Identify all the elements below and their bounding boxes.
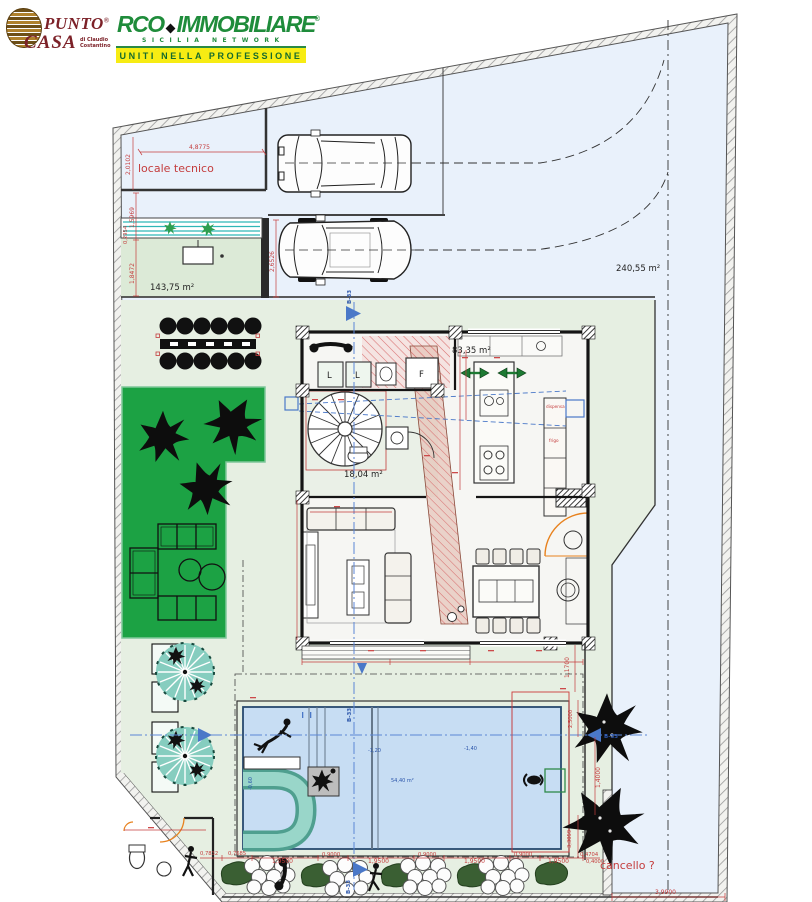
mirror (311, 130, 320, 136)
dim-label: 0,4000 (586, 859, 604, 865)
puntocasa-subtitle: di Claudio Costantino (80, 37, 111, 49)
puntocasa-logo: PUNTO® CASA di Claudio Costantino (4, 6, 114, 64)
arco-wordmark: RCO IMMOBILIARE ® (116, 7, 308, 37)
paving-area-label: 143,75 m² (150, 283, 194, 293)
washer-label: L (355, 371, 360, 381)
diamond-icon (165, 24, 175, 34)
dim-label: 0,4704 (580, 852, 599, 858)
arco-word1: RCO (117, 11, 164, 37)
dim-label: 0,9000 (418, 852, 436, 858)
dim-label: 2,6526 (269, 251, 276, 272)
dim-label: 0,2954 (123, 225, 129, 244)
fridge-column-label: frigo (549, 438, 559, 443)
floor-plan-screenshot: PUNTO® CASA di Claudio Costantino RCO IM… (0, 0, 812, 902)
house: L L F (285, 326, 595, 659)
outdoor-table (156, 318, 262, 370)
coffee-table (347, 560, 369, 615)
dim-label: 3,9900 (655, 889, 676, 896)
house-area-label: 83,35 m² (452, 346, 491, 356)
dim-label: 2,0102 (125, 154, 132, 175)
dim-label: 1,1700 (564, 657, 571, 678)
header: PUNTO® CASA di Claudio Costantino RCO IM… (0, 0, 320, 70)
terrace-steps (302, 646, 470, 659)
mirror (316, 215, 325, 221)
fridge-label: F (419, 370, 424, 380)
dim-label: 1,9500 (272, 858, 293, 865)
dim-label: 1,5969 (129, 207, 136, 228)
puntocasa-word2: CASA (24, 32, 77, 54)
dim-label: 0,7832 (200, 851, 218, 857)
arco-logo: RCO IMMOBILIARE ® SICILIA NETWORK UNITI … (116, 7, 308, 63)
pantry-label: dispensa (546, 404, 565, 409)
gate-label: cancello ? (600, 859, 655, 872)
dim-label: 1,4000 (595, 767, 602, 788)
puntocasa-word1: PUNTO® (44, 14, 110, 34)
pergola-strip (121, 218, 262, 238)
dim-label: 1,9500 (464, 858, 485, 865)
site-plan: locale tecnico 143,75 m² (0, 0, 812, 902)
pool-area-label: 54,40 m² (391, 778, 414, 784)
dim-label: 0,9000 (322, 852, 340, 858)
registered-icon: ® (104, 16, 110, 24)
dim-label: 0,7685 (228, 851, 246, 857)
dim-label: 0,9000 (514, 852, 532, 858)
bush-icon (535, 862, 567, 885)
dim-label: 1,9500 (368, 858, 389, 865)
sink-icon (157, 862, 171, 876)
diving-board (244, 757, 300, 769)
dim-label: 3,3059 (567, 830, 573, 848)
dim-label: 2,5000 (568, 710, 574, 728)
section-label: B-33 (604, 734, 618, 740)
mirror (311, 191, 320, 197)
arco-banner: UNITI NELLA PROFESSIONE (116, 46, 306, 63)
pool-depth-label: -1,20 (368, 748, 381, 754)
lot-area-label: 240,55 m² (616, 264, 660, 274)
dim-label: 1,8472 (129, 263, 136, 284)
locale-tecnico-label: locale tecnico (138, 162, 214, 175)
registered-icon: ® (315, 7, 320, 33)
arco-word2: IMMOBILIARE (177, 11, 315, 37)
section-label: B-33 (347, 290, 353, 304)
dining-table (473, 566, 539, 617)
dim-label: 4,8775 (189, 144, 210, 151)
washer-label: L (327, 371, 332, 381)
pool-depth-label: -1,40 (464, 746, 477, 752)
stairs-area-label: 18,04 m² (344, 470, 383, 480)
sofa (385, 553, 411, 623)
sofa (307, 508, 395, 530)
dim-label: 1,9500 (548, 858, 569, 865)
section-label: B-33 (346, 880, 352, 894)
mirror (316, 279, 325, 285)
parasol-icon (156, 643, 214, 701)
pool-depth-label: -0,60 (248, 777, 254, 790)
section-label: B-33 (347, 708, 353, 722)
arco-network-line: SICILIA NETWORK (142, 37, 308, 44)
laundry: L L F (318, 358, 438, 388)
car-suv (278, 130, 411, 197)
